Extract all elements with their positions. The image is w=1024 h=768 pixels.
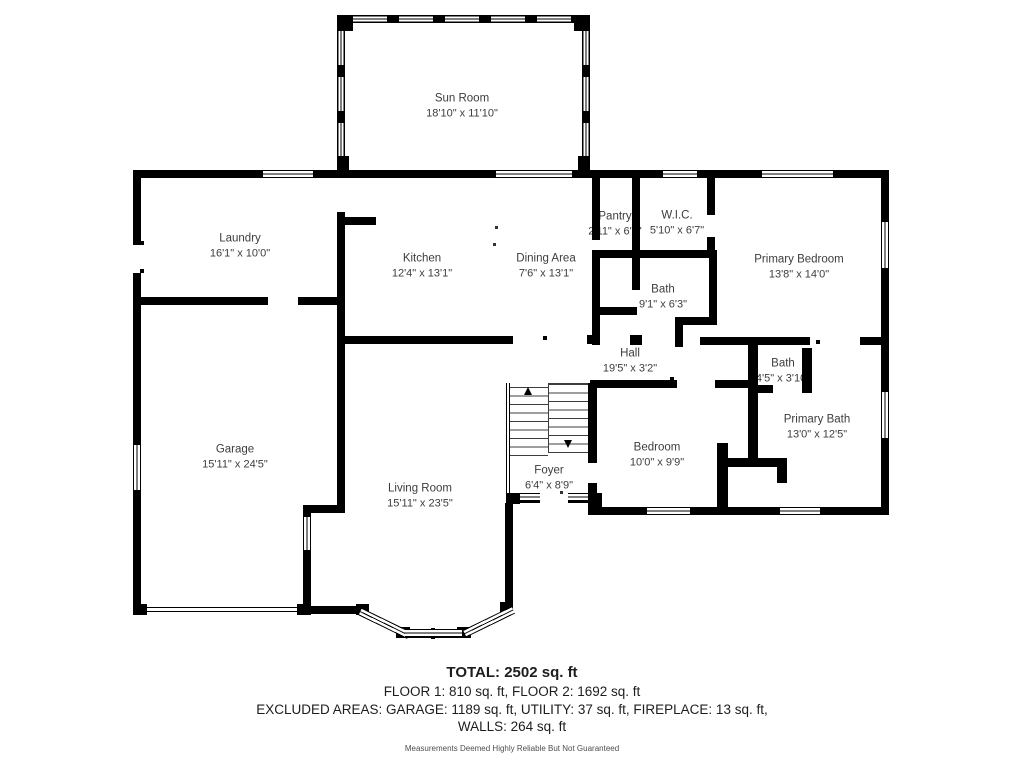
wall-tick	[236, 172, 240, 176]
stair-run-up	[510, 387, 548, 456]
wall-segment	[630, 335, 642, 345]
sunroom-window-wall	[353, 15, 574, 23]
wall-segment	[574, 15, 590, 31]
wall-segment	[748, 337, 758, 460]
door-tick	[560, 491, 563, 494]
wall-tick	[670, 377, 674, 381]
room-label-dining-area: Dining Area 7'6" x 13'1"	[516, 252, 575, 281]
window	[568, 493, 588, 503]
sunroom-window-wall	[582, 31, 590, 156]
window	[663, 170, 697, 178]
stair-down-arrow	[564, 440, 572, 448]
wall-tick	[543, 336, 547, 340]
wall-segment	[675, 325, 683, 347]
wall-tick	[425, 337, 429, 341]
floor-areas: FLOOR 1: 810 sq. ft, FLOOR 2: 1692 sq. f…	[0, 683, 1024, 701]
wall-segment	[298, 297, 345, 305]
bay-window	[358, 608, 410, 639]
window	[647, 507, 690, 515]
sunroom-window-wall	[337, 31, 345, 156]
wall-segment	[505, 503, 513, 613]
wall-segment	[587, 335, 600, 344]
wall-segment	[748, 385, 773, 393]
bay-window	[463, 606, 515, 637]
walls-area: WALLS: 264 sq. ft	[0, 718, 1024, 736]
wall-segment	[717, 443, 728, 507]
wall-segment	[133, 297, 268, 305]
room-label-primary-bath: Primary Bath 13'0" x 12'5"	[784, 413, 850, 442]
garage-door	[147, 607, 298, 612]
floor-plan-canvas: Sun Room 18'10" x 11'10" Laundry 16'1" x…	[0, 0, 1024, 768]
wall-segment	[777, 467, 787, 483]
wall-segment	[337, 212, 345, 513]
wall-segment	[675, 317, 717, 325]
room-label-laundry: Laundry 16'1" x 10'0"	[210, 232, 270, 261]
wall-segment	[133, 273, 141, 615]
wall-tick	[311, 299, 315, 303]
total-area: TOTAL: 2502 sq. ft	[0, 664, 1024, 681]
room-label-foyer: Foyer 6'4" x 8'9"	[525, 464, 573, 493]
wall-segment	[592, 252, 600, 345]
wall-segment	[632, 178, 640, 290]
wall-segment	[588, 493, 602, 515]
wall-segment	[709, 250, 717, 320]
room-label-hall: Hall 19'5" x 3'2"	[603, 347, 657, 376]
wall-tick	[736, 509, 740, 513]
wall-segment	[860, 337, 889, 345]
window	[303, 517, 311, 550]
window	[762, 170, 833, 178]
wall-segment	[590, 380, 677, 388]
wall-segment	[592, 250, 715, 258]
wall-segment	[592, 178, 600, 240]
window	[520, 493, 540, 503]
room-label-garage: Garage 15'11" x 24'5"	[202, 443, 268, 472]
door-tick	[140, 269, 144, 273]
wall-segment	[720, 458, 787, 467]
room-label-bath: Bath 9'1" x 6'3"	[639, 283, 687, 312]
window	[496, 170, 572, 178]
room-label-bedroom: Bedroom 10'0" x 9'9"	[630, 441, 684, 470]
wall-segment	[715, 380, 748, 388]
wall-segment	[802, 348, 812, 393]
window	[780, 507, 820, 515]
disclaimer: Measurements Deemed Highly Reliable But …	[0, 744, 1024, 753]
excluded-areas: EXCLUDED AREAS: GARAGE: 1189 sq. ft, UTI…	[0, 701, 1024, 719]
room-label-sun-room: Sun Room 18'10" x 11'10"	[426, 92, 498, 121]
wall-segment	[303, 606, 364, 614]
window	[881, 392, 889, 438]
window	[133, 445, 141, 490]
wall-segment	[337, 15, 353, 31]
wall-segment	[592, 307, 637, 315]
window	[881, 222, 889, 268]
wall-tick	[816, 340, 820, 344]
wall-tick	[493, 243, 496, 246]
room-label-primary-bedroom: Primary Bedroom 13'8" x 14'0"	[754, 253, 843, 282]
window	[263, 170, 313, 178]
wall-segment	[133, 604, 147, 615]
wall-segment	[345, 217, 376, 225]
room-label-kitchen: Kitchen 12'4" x 13'1"	[392, 252, 452, 281]
wall-segment	[133, 170, 141, 245]
wall-segment	[707, 178, 715, 215]
wall-segment	[588, 383, 597, 463]
room-label-wic: W.I.C. 5'10" x 6'7"	[650, 209, 704, 238]
door-tick	[140, 241, 144, 245]
wall-tick	[495, 226, 498, 229]
stair-up-arrow	[524, 387, 532, 395]
bay-window	[405, 629, 462, 638]
room-label-living-room: Living Room 15'11" x 23'5"	[387, 482, 453, 511]
area-summary: TOTAL: 2502 sq. ft FLOOR 1: 810 sq. ft, …	[0, 664, 1024, 753]
